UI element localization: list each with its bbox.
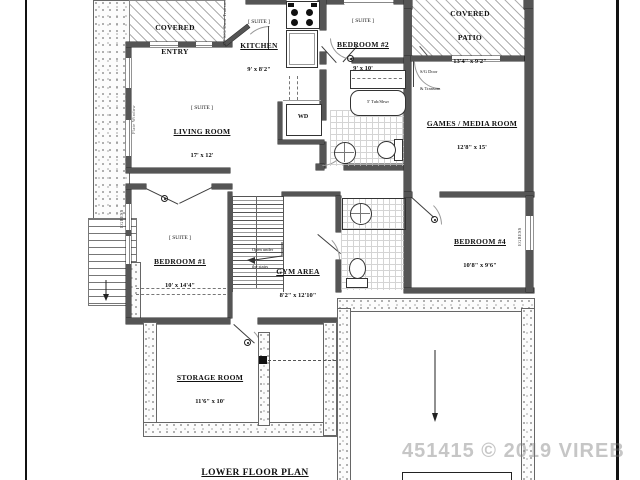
open-under-line2: the stairs — [252, 264, 294, 270]
bathtub: 5' Tub/Shwr — [350, 90, 406, 116]
transom-note: 1/2 S/G Door Transom — [222, 4, 227, 46]
label-name: BEDROOM #1 — [130, 258, 230, 266]
bottom-cutoff-rect — [402, 472, 512, 480]
games-room-label: GAMES / MEDIA ROOM 12'8" x 15' — [418, 104, 526, 168]
toilet-bowl — [377, 141, 396, 159]
burner-icon — [291, 9, 298, 16]
sink-cross-line — [351, 213, 370, 214]
bigroom-north-wall — [337, 298, 535, 312]
electrical-outlet-icon — [244, 339, 251, 346]
sg-door-line2: & Transom — [420, 86, 456, 92]
entry-line2: ENTRY — [140, 48, 210, 56]
burner-icon — [306, 19, 313, 26]
plan-title: LOWER FLOOR PLAN 9' 0 3/4" Ceilings — [180, 446, 330, 480]
wall — [320, 52, 326, 64]
stove-control — [311, 3, 317, 7]
sg-door-note: S/G Door & Transom — [420, 58, 456, 102]
bedroom2-label: [ SUITE ] BEDROOM #2 9' x 10' — [328, 1, 398, 89]
label-dims: 9' x 8'2" — [228, 66, 290, 74]
label-dims: 10'8" x 9'6" — [432, 262, 528, 270]
beam-dashed-line — [268, 360, 336, 361]
bedroom1-north-wall — [212, 184, 232, 189]
open-under-stairs-note: Open under the stairs — [252, 236, 294, 280]
open-under-line1: Open under — [252, 247, 294, 253]
label-dims: 10' x 14'4" — [130, 282, 230, 290]
closet-dashed-line — [297, 76, 298, 100]
tub-label: 5' Tub/Shwr — [351, 99, 405, 105]
bedroom1-label: [ SUITE ] BEDROOM #1 10' x 14'4" — [130, 218, 230, 306]
patio-post — [524, 0, 533, 9]
egress-right-note: EGRESS — [517, 216, 522, 246]
wall — [278, 140, 324, 144]
patio-upper-cutoff: COVERED — [432, 10, 508, 18]
kitchen-label: [ SUITE ] KITCHEN 9' x 8'2" — [228, 2, 290, 90]
concrete-planter-band — [93, 0, 130, 220]
label-name: LIVING ROOM — [152, 128, 252, 136]
label-tag: [ SUITE ] — [328, 17, 398, 25]
bed4-north-wall — [440, 192, 534, 197]
electrical-outlet-icon — [161, 195, 168, 202]
wall — [282, 192, 340, 196]
label-tag: [ SUITE ] — [228, 18, 290, 26]
label-name: KITCHEN — [228, 42, 290, 50]
stove — [286, 1, 320, 29]
sink-cross-line — [335, 152, 354, 153]
toilet-bowl — [349, 258, 366, 279]
label-name: STORAGE ROOM — [162, 374, 258, 382]
beam-post — [259, 356, 267, 364]
floor-plan: 5' Tub/Shwr — [0, 0, 640, 480]
label-name: BEDROOM #2 — [328, 41, 398, 49]
living-room-label: [ SUITE ] LIVING ROOM 17' x 12' — [152, 88, 252, 176]
label-name: PATIO — [432, 34, 508, 42]
storage-room-label: STORAGE ROOM 11'6" x 10' — [162, 358, 258, 422]
storage-east-wall — [323, 322, 337, 436]
entry-line1: COVERED — [140, 24, 210, 32]
label-dims: 17' x 12' — [152, 152, 252, 160]
games-east-wall — [525, 9, 533, 196]
bath2-sink — [350, 203, 372, 225]
storage-south-wall — [143, 422, 337, 437]
burner-icon — [291, 19, 298, 26]
plan-title-name: LOWER FLOOR PLAN — [180, 468, 330, 479]
frame-right-line — [616, 0, 619, 480]
storage-divider-wall — [258, 332, 270, 426]
label-dims: 8'2" x 12'10" — [262, 292, 334, 300]
wall — [278, 102, 282, 144]
label-tag: [ SUITE ] — [130, 234, 230, 242]
label-dims: 11'6" x 10' — [162, 398, 258, 406]
wall — [320, 0, 326, 30]
watermark: 451415 © 2019 VIREB — [402, 440, 625, 463]
steps-down-arrow-icon — [98, 278, 114, 302]
slope-down-arrow-icon — [426, 348, 444, 424]
label-name: BEDROOM #4 — [432, 238, 528, 246]
living-window — [126, 58, 131, 88]
counter-inner-line — [289, 33, 315, 65]
label-dims: 12'8" x 15' — [418, 144, 526, 152]
covered-entry-label: COVERED ENTRY — [140, 8, 210, 72]
egress-left-note: EGRESS — [119, 202, 124, 228]
bed1-south-wall — [126, 318, 230, 324]
counter-line — [283, 100, 321, 101]
patio-post — [404, 0, 412, 9]
label-name: GAMES / MEDIA ROOM — [418, 120, 526, 128]
wall — [404, 9, 411, 56]
bed4-door-swing — [414, 197, 442, 225]
sg-door-line1: S/G Door — [420, 69, 456, 75]
plate-window-note: Plate Window — [131, 98, 136, 134]
frame-left-line — [25, 0, 27, 480]
label-tag: [ SUITE ] — [152, 104, 252, 112]
bed4-south-wall — [404, 288, 534, 293]
bedroom1-north-wall — [126, 184, 146, 189]
label-dims: 9' x 10' — [328, 65, 398, 73]
pedestal-sink — [334, 142, 356, 164]
bigroom-west-wall — [337, 308, 351, 480]
burner-icon — [306, 9, 313, 16]
kitchen-counter — [286, 30, 318, 68]
washer-dryer — [286, 104, 322, 136]
toilet-tank — [346, 278, 368, 288]
bedroom1-door-leaf — [179, 187, 212, 204]
storage-west-wall — [143, 322, 157, 436]
bedroom4-label: BEDROOM #4 10'8" x 9'6" — [432, 222, 528, 286]
wd-label: WD — [286, 114, 320, 120]
